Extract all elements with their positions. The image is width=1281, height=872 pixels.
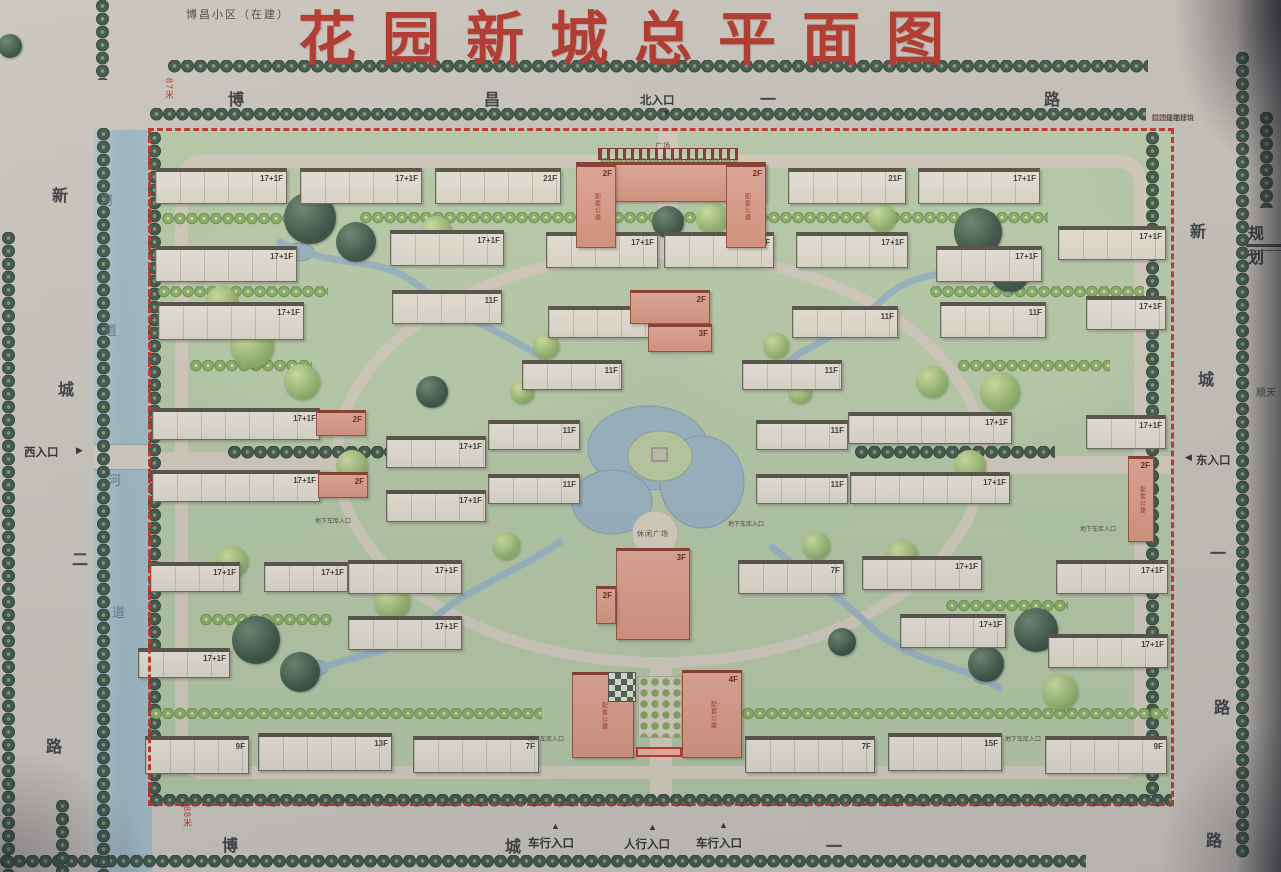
- residential-building: 17+1F: [390, 230, 504, 266]
- facility-label: 配套公建: [743, 193, 750, 221]
- building-height-label: 4F: [729, 675, 738, 684]
- residential-building: 17+1F: [848, 412, 1012, 444]
- west-entrance-label: 西入口: [24, 444, 59, 460]
- residential-building: 17+1F: [1058, 226, 1166, 260]
- road-name-char-bottom: 博: [222, 832, 238, 856]
- facility-building: 2F配套公建: [1128, 456, 1154, 542]
- road-name-char-left: 路: [46, 733, 62, 757]
- road-name-char-top: 路: [1044, 86, 1060, 110]
- north-entrance-label: 北入口: [640, 92, 675, 108]
- building-height-label: 17+1F: [1139, 232, 1162, 241]
- building-height-label: 17+1F: [277, 308, 300, 317]
- building-height-label: 17+1F: [1139, 302, 1162, 311]
- building-height-label: 7F: [831, 566, 840, 575]
- building-height-label: 13F: [374, 739, 388, 748]
- plaza-label: 广场: [655, 141, 671, 151]
- residential-building: 11F: [756, 420, 848, 450]
- residential-building: 17+1F: [264, 562, 348, 592]
- residential-building: 17+1F: [152, 408, 320, 440]
- residential-building: 15F: [888, 733, 1002, 771]
- facility-label: 配套公建: [709, 701, 716, 729]
- road-name-char-right: 一: [1210, 540, 1226, 564]
- residential-building: 11F: [522, 360, 622, 390]
- garage-entrance-label: 地下车库入口: [1080, 524, 1116, 533]
- building-height-label: 21F: [543, 174, 557, 183]
- south-entrance-label-2: 车行入口: [696, 835, 742, 851]
- building-height-label: 17+1F: [1015, 252, 1038, 261]
- building-height-label: 17+1F: [260, 174, 283, 183]
- right-sheet-rule-thin: [1246, 250, 1281, 251]
- river: [94, 130, 152, 872]
- building-height-label: 17+1F: [1141, 566, 1164, 575]
- building-height-label: 2F: [353, 415, 362, 424]
- residential-building: 17+1F: [152, 470, 320, 502]
- south-entrance-label-0-arrow: ▲: [551, 821, 560, 831]
- building-height-label: 7F: [862, 742, 871, 751]
- residential-building: 17+1F: [158, 302, 304, 340]
- road-name-char-bottom: 城: [505, 833, 521, 857]
- building-height-label: 17+1F: [477, 236, 500, 245]
- residential-building: 11F: [742, 360, 842, 390]
- building-height-label: 15F: [984, 739, 998, 748]
- road-name-char-bottom: 路: [1206, 827, 1222, 851]
- residential-building: 17+1F: [900, 614, 1006, 648]
- garage-entrance-label: 地下车库入口: [1005, 734, 1041, 743]
- residential-building: 17+1F: [796, 232, 908, 268]
- building-height-label: 17+1F: [985, 418, 1008, 427]
- building-height-label: 2F: [753, 169, 762, 178]
- facility-label: 配套公建: [593, 193, 600, 221]
- residential-building: 17+1F: [150, 562, 240, 592]
- facility-building: 4F配套公建: [682, 670, 742, 758]
- residential-building: 17+1F: [850, 472, 1010, 504]
- tree-row: [2, 232, 15, 872]
- adjacent-area-label: 博昌小区（在建）: [186, 6, 290, 22]
- residential-building: 17+1F: [348, 560, 462, 594]
- page-title: 花园新城总平面图: [298, 0, 998, 76]
- residential-building: 11F: [488, 474, 580, 504]
- building-height-label: 11F: [563, 480, 576, 489]
- river-name-char: 河: [108, 470, 121, 489]
- building-height-label: 17+1F: [1139, 421, 1162, 430]
- facility-building: [608, 672, 636, 702]
- tree-row: [1260, 112, 1273, 208]
- south-entrance-label-2-arrow: ▲: [719, 820, 728, 830]
- residential-building: 7F: [738, 560, 844, 594]
- south-entrance-label-1: 人行入口: [624, 836, 670, 852]
- residential-building: 17+1F: [1048, 634, 1168, 668]
- building-height-label: 17+1F: [631, 238, 654, 247]
- building-height-label: 17+1F: [435, 566, 458, 575]
- facility-label: 配套公建: [1138, 486, 1145, 514]
- building-height-label: 11F: [881, 312, 894, 321]
- road-name-char-right: 新: [1190, 218, 1206, 242]
- south-road-width-label: 88米: [181, 806, 194, 828]
- residential-building: 11F: [756, 474, 848, 504]
- river-name-char: 道: [104, 320, 117, 339]
- right-sheet-partial-text: 顺天: [1256, 384, 1276, 399]
- residential-building: 11F: [792, 306, 898, 338]
- residential-building: 17+1F: [918, 168, 1040, 204]
- building-height-label: 2F: [603, 169, 612, 178]
- facility-building: 2F: [316, 410, 366, 436]
- residential-building: 17+1F: [386, 436, 486, 468]
- building-height-label: 11F: [605, 366, 618, 375]
- north-road-width-label: 87米: [163, 78, 176, 100]
- building-height-label: 17+1F: [293, 414, 316, 423]
- right-sheet-rule: [1246, 244, 1281, 247]
- residential-building: 17+1F: [386, 490, 486, 522]
- building-height-label: 17+1F: [983, 478, 1006, 487]
- building-height-label: 3F: [677, 553, 686, 562]
- residential-building: 7F: [745, 736, 875, 773]
- building-height-label: 17+1F: [435, 622, 458, 631]
- facility-building: 2F配套公建: [726, 164, 766, 248]
- building-height-label: 2F: [697, 295, 706, 304]
- building-height-label: 17+1F: [321, 568, 344, 577]
- residential-building: 17+1F: [1086, 415, 1166, 449]
- residential-building: 9F: [1045, 736, 1167, 774]
- tree-row: [56, 800, 69, 872]
- building-height-label: 17+1F: [293, 476, 316, 485]
- building-height-label: 21F: [888, 174, 902, 183]
- tree-row: [150, 108, 1146, 121]
- road-name-char-right: 城: [1198, 366, 1214, 390]
- facility-building: 2F配套公建: [576, 164, 616, 248]
- garage-entrance-label: 地下车库入口: [528, 734, 564, 743]
- building-height-label: 9F: [1154, 742, 1163, 751]
- building-height-label: 11F: [825, 366, 838, 375]
- building-height-label: 7F: [526, 742, 535, 751]
- road-name-char-top: 博: [228, 86, 244, 110]
- building-height-label: 17+1F: [1013, 174, 1036, 183]
- residential-building: 17+1F: [300, 168, 422, 204]
- facility-building: 2F: [630, 290, 710, 324]
- building-height-label: 2F: [355, 477, 364, 486]
- building-height-label: 11F: [1029, 308, 1042, 317]
- facility-building: [636, 747, 682, 757]
- residential-building: 11F: [392, 290, 502, 324]
- garage-entrance-label: 地下车库入口: [315, 516, 351, 525]
- residential-building: 17+1F: [862, 556, 982, 590]
- road-name-char-top: 一: [760, 86, 776, 110]
- building-height-label: 3F: [699, 329, 708, 338]
- building-height-label: 2F: [1141, 461, 1150, 470]
- building-height-label: 11F: [485, 296, 498, 305]
- road-name-char-left: 城: [58, 376, 74, 400]
- road-name-char-top: 昌: [484, 86, 500, 110]
- site-plan-photo: 花园新城总平面图 博昌小区（在建） 征地范围已建绿化林带已建住宅建筑拟建住宅建筑…: [0, 0, 1281, 872]
- building-height-label: 9F: [236, 742, 245, 751]
- west-entrance-bridge: [94, 444, 152, 470]
- north-entrance-label-arrow: ▼: [662, 108, 671, 118]
- west-entrance-label-arrow: ▶: [76, 445, 83, 456]
- facility-building: 2F: [596, 586, 616, 624]
- building-height-label: 17+1F: [395, 174, 418, 183]
- residential-building: 17+1F: [936, 246, 1042, 282]
- facility-building: 2F: [318, 472, 368, 498]
- east-entrance-label: 东入口: [1196, 452, 1231, 468]
- residential-building: 11F: [488, 420, 580, 450]
- facility-building: [638, 676, 682, 738]
- residential-building: 13F: [258, 733, 392, 771]
- building-height-label: 17+1F: [1141, 640, 1164, 649]
- residential-building: 17+1F: [155, 168, 287, 204]
- building-height-label: 17+1F: [203, 654, 226, 663]
- building-height-label: 11F: [831, 480, 844, 489]
- road-name-char-left: 新: [52, 182, 68, 206]
- tree-cluster: [0, 34, 22, 58]
- residential-building: 17+1F: [1086, 296, 1166, 330]
- east-entrance-label-arrow: ◀: [1185, 452, 1192, 463]
- building-height-label: 17+1F: [459, 442, 482, 451]
- plaza-label: 休闲广场: [637, 529, 669, 539]
- building-height-label: 11F: [563, 426, 576, 435]
- building-height-label: 2F: [603, 591, 612, 600]
- building-height-label: 17+1F: [979, 620, 1002, 629]
- legend-label: 拟建住宅建筑: [1152, 113, 1194, 123]
- building-height-label: 17+1F: [213, 568, 236, 577]
- road-name-char-bottom: 一: [826, 833, 842, 857]
- tree-row: [96, 0, 109, 80]
- river-name-char: 河: [100, 190, 113, 209]
- residential-building: 17+1F: [138, 648, 230, 678]
- south-entrance-label-0: 车行入口: [528, 835, 574, 851]
- tree-row: [0, 855, 1086, 868]
- river-name-char: 道: [112, 602, 125, 621]
- tree-row: [1236, 52, 1249, 858]
- residential-building: 7F: [413, 736, 539, 773]
- residential-building: 11F: [940, 302, 1046, 338]
- building-height-label: 11F: [831, 426, 844, 435]
- garage-entrance-label: 地下车库入口: [728, 519, 764, 528]
- building-height-label: 17+1F: [459, 496, 482, 505]
- building-height-label: 17+1F: [881, 238, 904, 247]
- residential-building: 17+1F: [348, 616, 462, 650]
- residential-building: 17+1F: [1056, 560, 1168, 594]
- road-name-char-right: 路: [1214, 694, 1230, 718]
- road-name-char-left: 二: [72, 546, 88, 570]
- facility-building: 3F: [616, 548, 690, 640]
- building-height-label: 17+1F: [955, 562, 978, 571]
- residential-building: 21F: [788, 168, 906, 204]
- building-height-label: 17+1F: [270, 252, 293, 261]
- residential-building: 9F: [145, 736, 249, 774]
- facility-building: 3F: [648, 324, 712, 352]
- south-entrance-label-1-arrow: ▲: [648, 822, 657, 832]
- facility-label: 配套公建: [600, 702, 607, 730]
- residential-building: 17+1F: [155, 246, 297, 282]
- west-entrance-path: [152, 452, 334, 470]
- residential-building: 21F: [435, 168, 561, 204]
